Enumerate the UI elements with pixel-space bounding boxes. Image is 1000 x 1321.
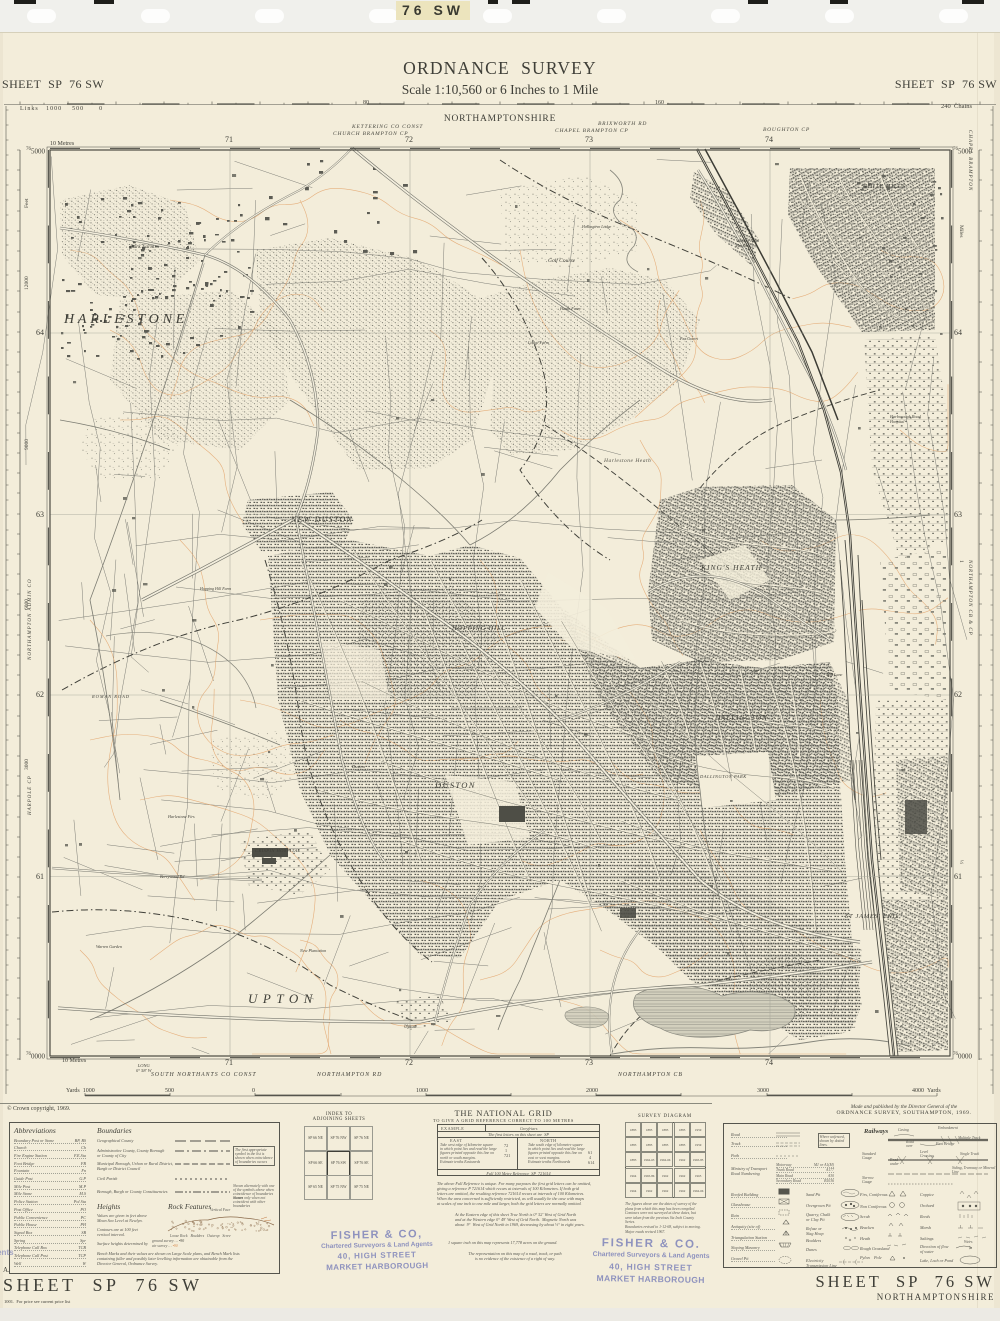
svg-text:HOPPING HILL: HOPPING HILL bbox=[451, 625, 506, 632]
svg-text:Upton: Upton bbox=[404, 1025, 417, 1030]
svg-text:WHITE HILLS: WHITE HILLS bbox=[862, 184, 906, 190]
svg-text:Hospital: Hospital bbox=[889, 419, 905, 424]
svg-text:Hollingtree Lodge: Hollingtree Lodge bbox=[581, 224, 612, 229]
svg-text:Duston: Duston bbox=[351, 764, 366, 769]
svg-text:New Plantation: New Plantation bbox=[299, 948, 326, 953]
svg-text:Heath Farm: Heath Farm bbox=[559, 306, 581, 311]
svg-text:HARLESTONE: HARLESTONE bbox=[63, 312, 188, 327]
svg-text:Mill Lane: Mill Lane bbox=[825, 672, 843, 677]
svg-text:DALLINGTON: DALLINGTON bbox=[714, 714, 768, 722]
svg-text:KING'S HEATH: KING'S HEATH bbox=[700, 563, 762, 572]
svg-text:Hopping Hill Farm: Hopping Hill Farm bbox=[199, 586, 231, 591]
svg-text:CRISPIN HOSPITAL: CRISPIN HOSPITAL bbox=[255, 848, 301, 853]
svg-text:NEW DUSTON: NEW DUSTON bbox=[290, 515, 353, 524]
svg-text:ST JAMES' END: ST JAMES' END bbox=[845, 913, 898, 920]
svg-text:ROMAN ROAD: ROMAN ROAD bbox=[91, 694, 130, 699]
svg-text:UPTON: UPTON bbox=[248, 991, 318, 1006]
svg-text:Harlestone Firs: Harlestone Firs bbox=[167, 814, 195, 819]
svg-text:Warren Garden: Warren Garden bbox=[96, 944, 122, 949]
svg-text:Golf Course: Golf Course bbox=[548, 257, 576, 264]
svg-text:DALLINGTON PARK: DALLINGTON PARK bbox=[699, 774, 747, 779]
svg-text:Park Farm: Park Farm bbox=[129, 244, 154, 250]
svg-text:Lodge Farm: Lodge Farm bbox=[527, 340, 549, 345]
svg-text:DUSTON: DUSTON bbox=[434, 780, 476, 790]
svg-text:Hospital: Hospital bbox=[735, 243, 751, 248]
svg-text:Berrywood Rd: Berrywood Rd bbox=[160, 874, 185, 879]
svg-text:Fox Covert: Fox Covert bbox=[679, 336, 699, 341]
svg-text:Harlestone Heath: Harlestone Heath bbox=[603, 458, 651, 464]
